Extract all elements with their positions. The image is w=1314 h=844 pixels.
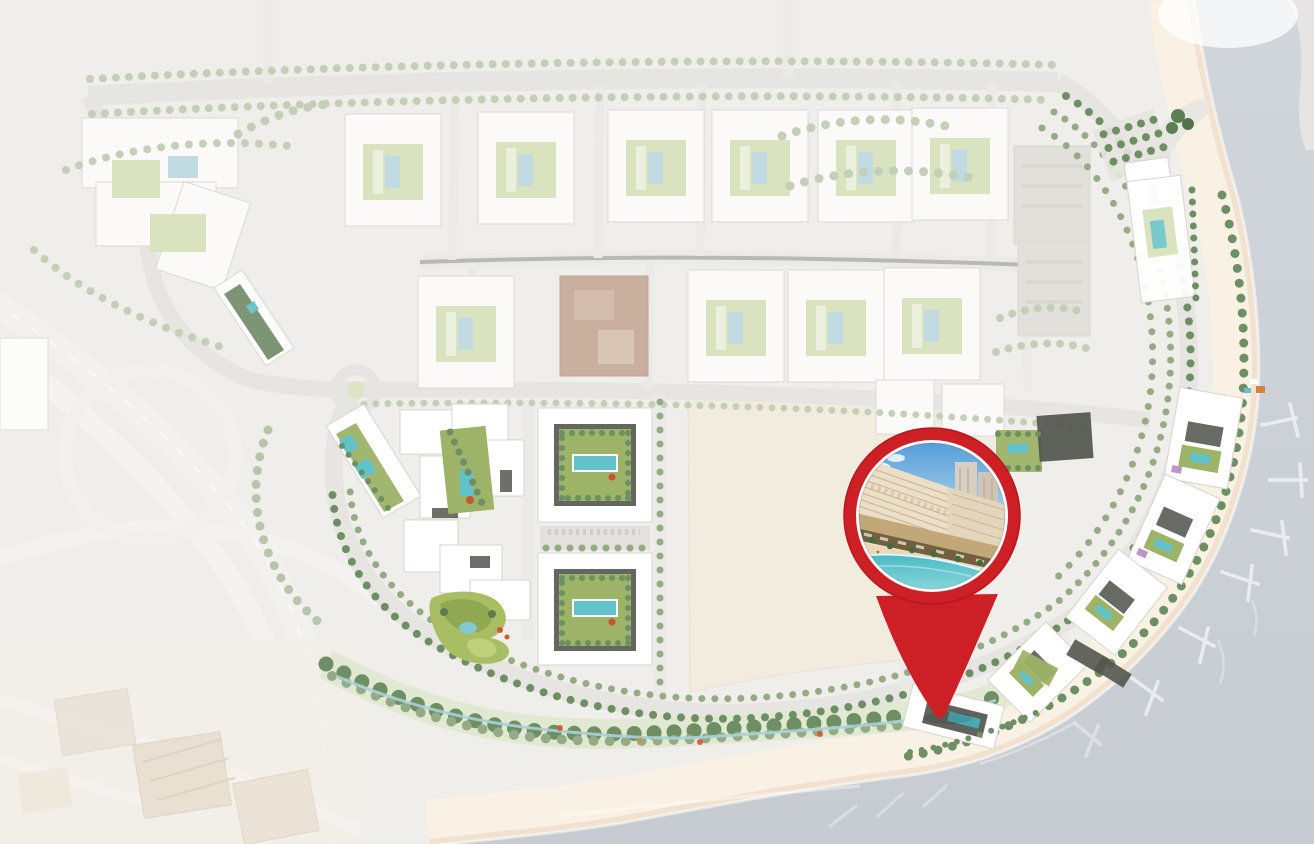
faded-block bbox=[876, 380, 934, 434]
faded-block bbox=[345, 114, 441, 226]
faded-red-block bbox=[560, 276, 648, 376]
masterplan-map bbox=[0, 0, 1314, 844]
faded-port-context bbox=[0, 640, 360, 844]
faded-block bbox=[788, 270, 884, 382]
courtyard-square-block-b bbox=[538, 553, 652, 665]
faded-block bbox=[418, 276, 514, 388]
faded-block bbox=[608, 110, 704, 222]
faded-block bbox=[688, 270, 784, 382]
faded-block bbox=[818, 110, 914, 222]
block-gap-parking bbox=[540, 526, 650, 550]
faded-block bbox=[884, 268, 980, 380]
faded-block bbox=[712, 110, 808, 222]
faded-block bbox=[478, 112, 574, 224]
courtyard-square-block-a bbox=[538, 408, 652, 522]
pin-shadow bbox=[924, 712, 972, 724]
faded-block bbox=[942, 384, 1004, 436]
roundabout-island bbox=[347, 381, 365, 399]
siteplan-canvas bbox=[0, 0, 1314, 844]
white-warehouse-context bbox=[0, 338, 48, 430]
